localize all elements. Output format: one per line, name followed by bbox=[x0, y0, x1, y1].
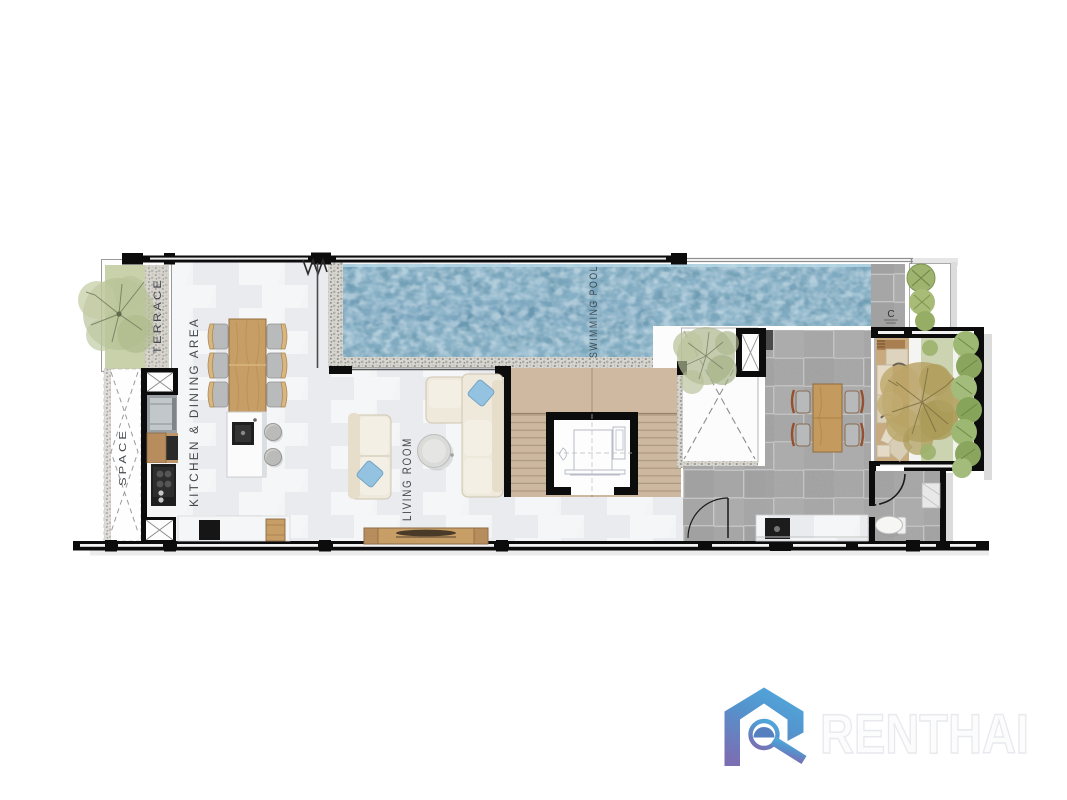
svg-text:RENTHAI: RENTHAI bbox=[820, 702, 1029, 765]
svg-text:C: C bbox=[887, 309, 894, 320]
svg-text:KITCHEN & DINING AREA: KITCHEN & DINING AREA bbox=[189, 317, 201, 507]
svg-text:SPACE: SPACE bbox=[117, 428, 129, 486]
svg-text:TERRACE: TERRACE bbox=[152, 278, 164, 354]
svg-text:LIVING ROOM: LIVING ROOM bbox=[402, 437, 414, 521]
svg-text:SWIMMING POOL: SWIMMING POOL bbox=[588, 265, 600, 358]
